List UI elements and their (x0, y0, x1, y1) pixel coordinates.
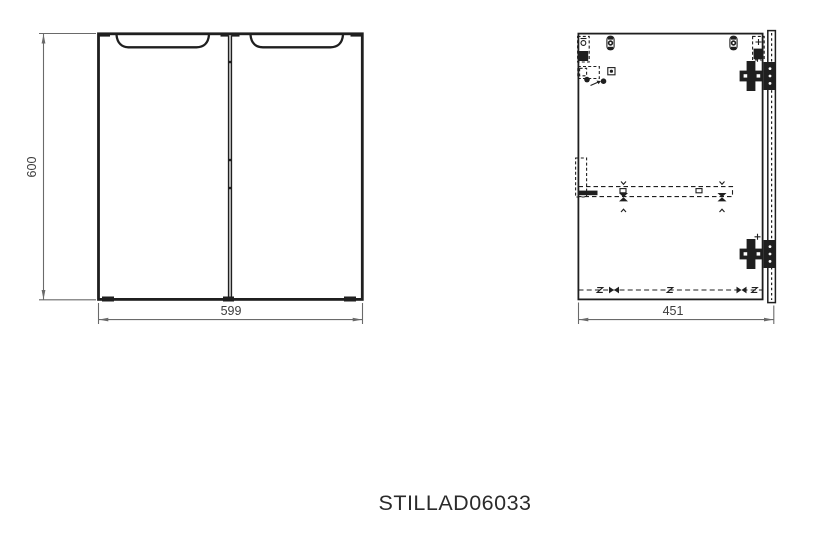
top-hinge (740, 56, 776, 91)
width-dimension-label: 599 (208, 304, 254, 318)
height-dimension-label: 600 (18, 152, 46, 182)
technical-drawing-page: 600 599 451 STILLAD06033 (0, 0, 816, 549)
front-view (99, 33, 363, 302)
bottom-hinge (740, 234, 776, 269)
product-code-caption: STILLAD06033 (303, 491, 607, 516)
cabinet-drawing-linework (0, 0, 816, 549)
depth-dimension-label: 451 (650, 304, 696, 318)
front-view-height-dimension (39, 34, 96, 300)
bottom-panel-fixings (579, 287, 763, 294)
hanging-bracket (578, 67, 615, 86)
side-view (576, 31, 776, 303)
right-door-handle-recess (251, 35, 344, 47)
top-cam-fittings (578, 36, 765, 62)
left-door-handle-recess (117, 35, 210, 47)
shelf-hidden-detail (576, 158, 733, 212)
